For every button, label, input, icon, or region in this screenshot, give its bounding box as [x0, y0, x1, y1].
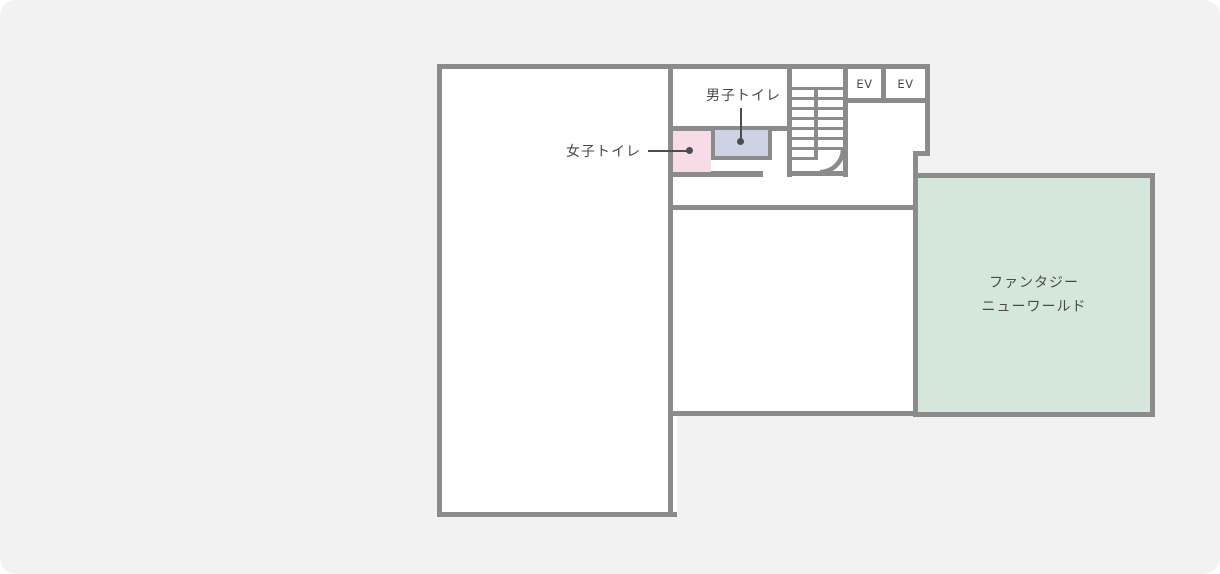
elevator-1: EV [848, 69, 881, 98]
left-building-floor [437, 64, 677, 517]
elevator-2: EV [886, 69, 925, 98]
floor-map: EV EV ファンタジー ニューワールド 男子トイレ 女子トイレ [0, 0, 1220, 574]
mens-toilet-marker-dot [737, 138, 744, 145]
elevator-2-label: EV [897, 77, 913, 91]
mens-toilet-label: 男子トイレ [706, 88, 780, 104]
womens-toilet-marker-dot [686, 147, 693, 154]
wall-segment-ev-bottom [843, 98, 930, 103]
stair-door-arc [810, 140, 850, 180]
fantasy-new-world-label: ファンタジー ニューワールド [918, 263, 1150, 327]
middle-room [668, 205, 918, 416]
wall-segment-outer-right [925, 64, 930, 156]
womens-toilet-label: 女子トイレ [565, 144, 641, 160]
womens-toilet-leader-line [648, 150, 688, 152]
fantasy-label-line2: ニューワールド [982, 295, 1087, 319]
fantasy-label-line1: ファンタジー [989, 271, 1079, 295]
mens-toilet-leader-line [740, 108, 742, 139]
door-swing-path [820, 149, 843, 172]
wall-segment-left [437, 64, 442, 517]
elevator-1-label: EV [856, 77, 872, 91]
wall-segment-bottom-left-building [437, 512, 677, 517]
